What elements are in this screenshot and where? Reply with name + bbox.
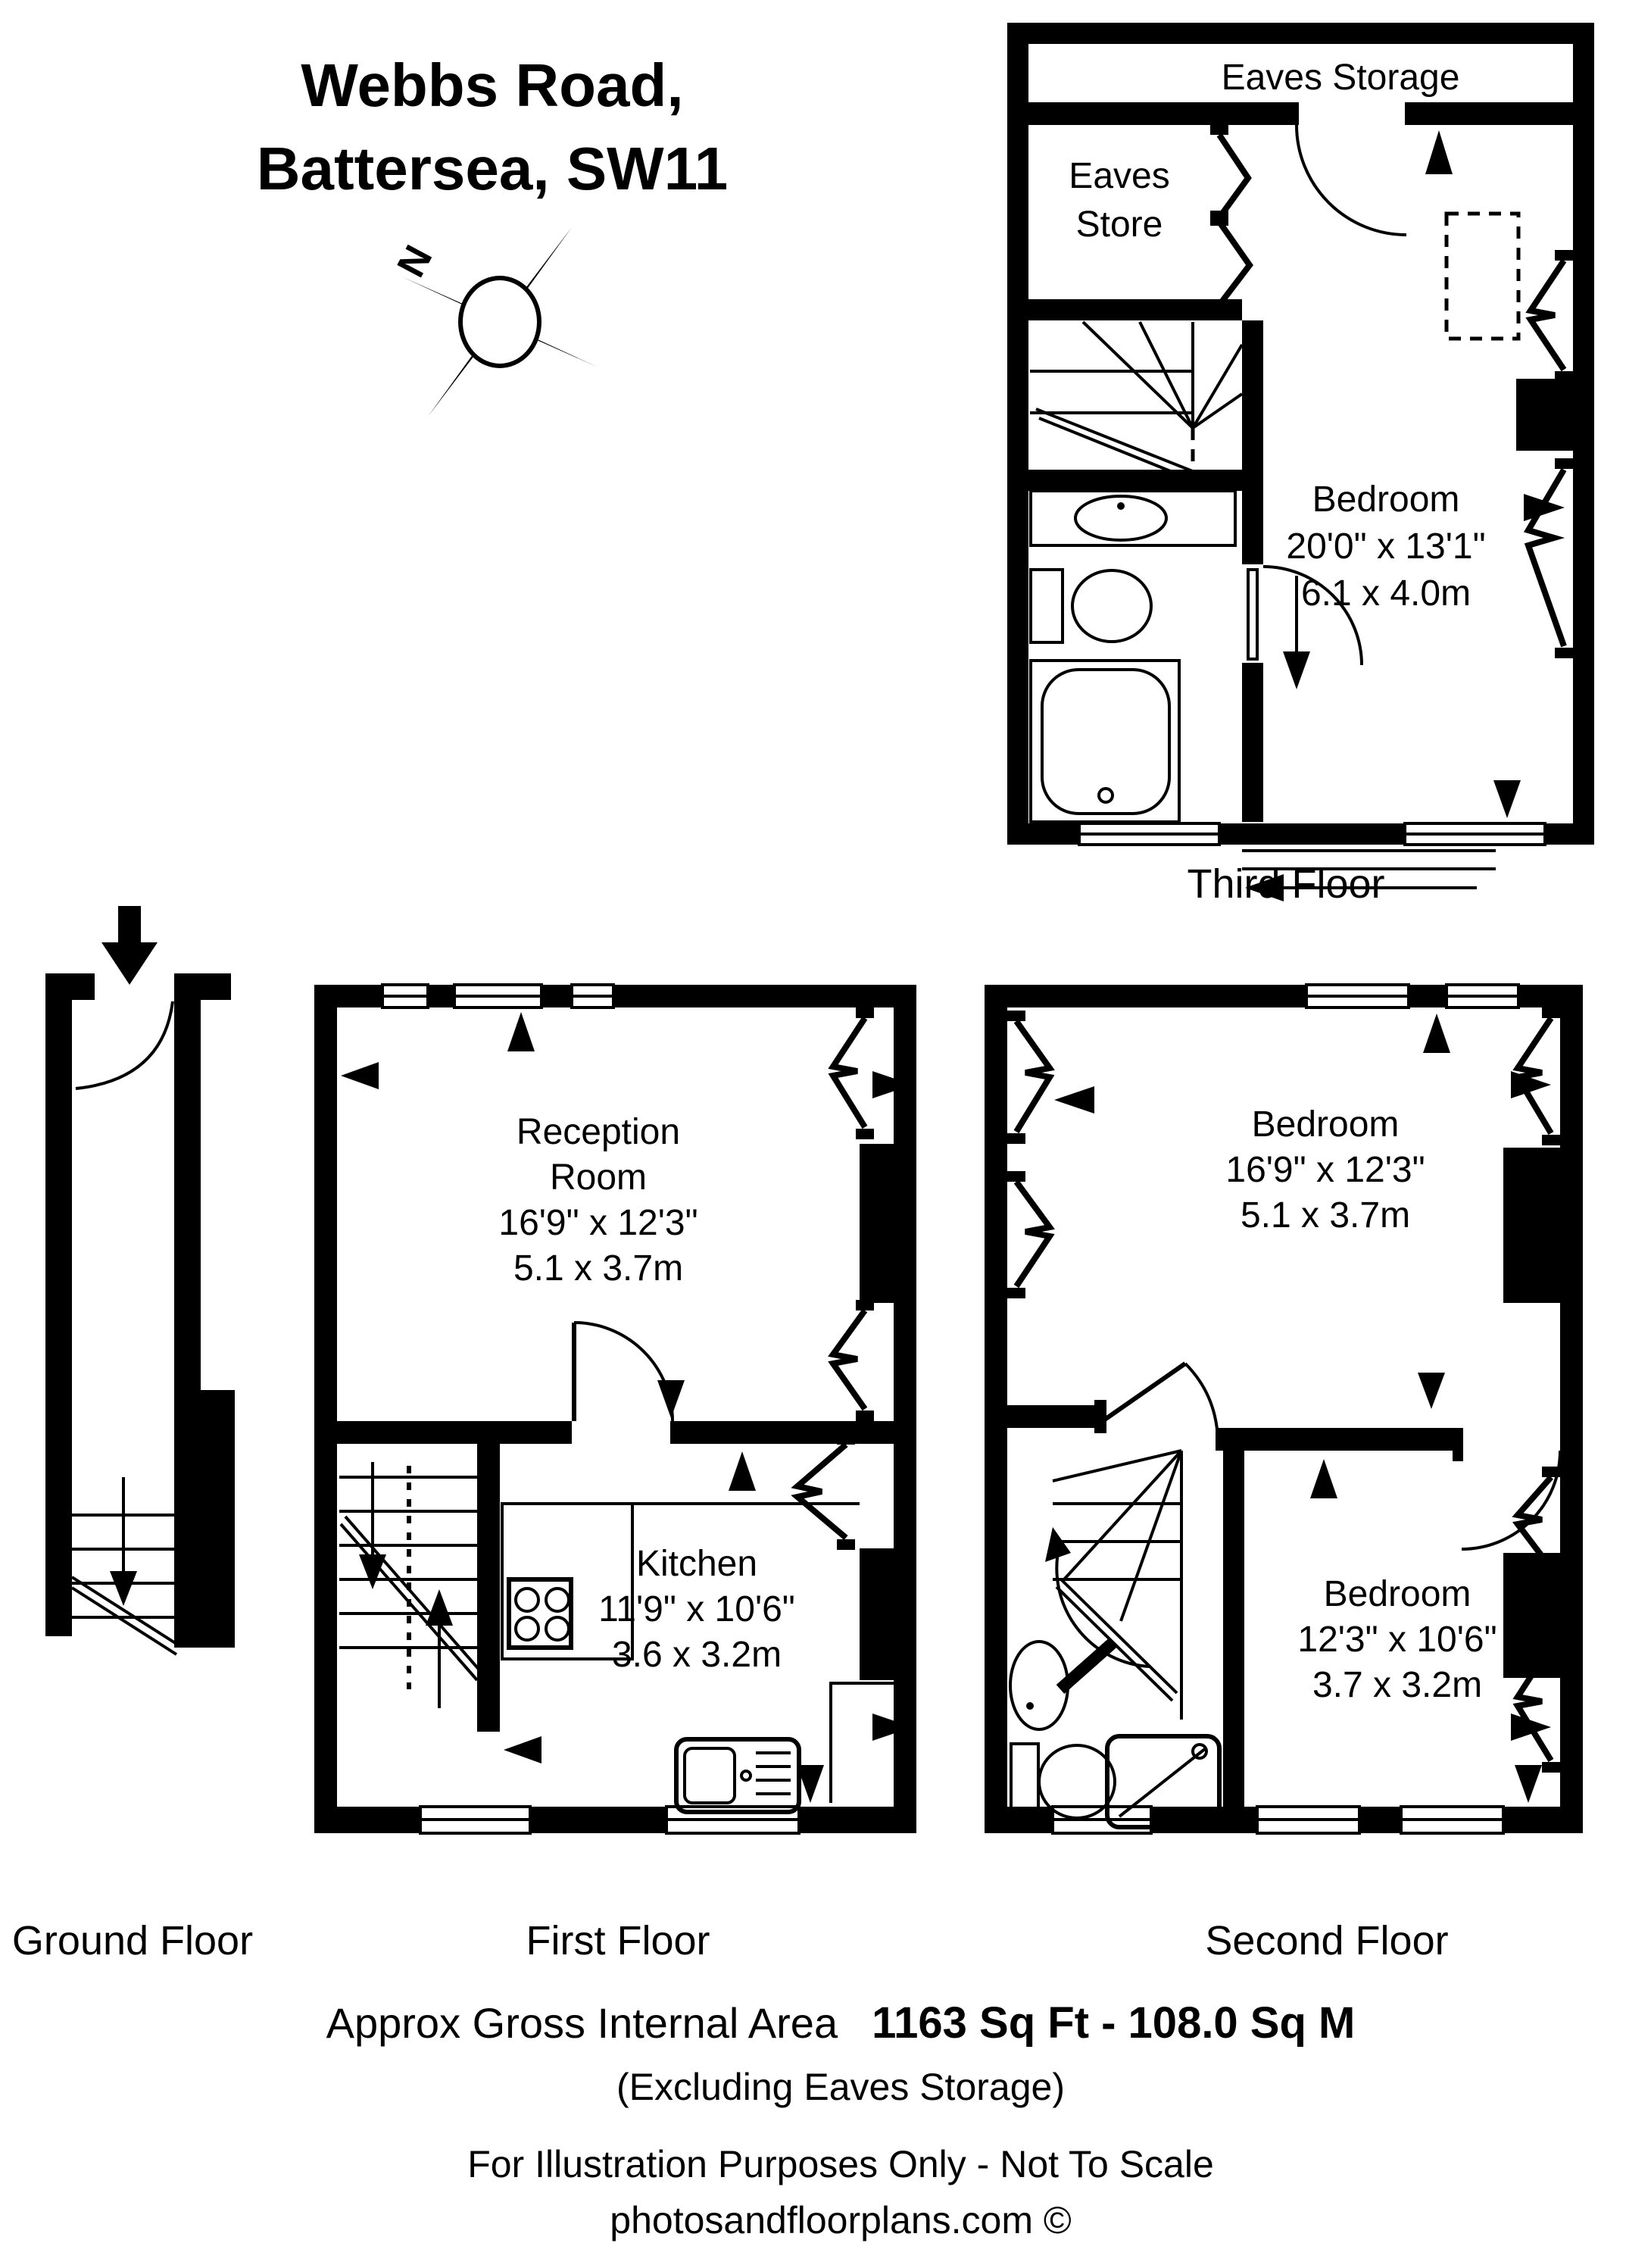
- third-floor-plan: Eaves Storage Eaves Store Bedroom 20'0" …: [1007, 23, 1594, 907]
- window-zigzag: [1007, 1011, 1094, 1298]
- room-label-bedroom: Bedroom: [1252, 1104, 1400, 1145]
- room-dims-metric: 5.1 x 3.7m: [513, 1248, 683, 1289]
- footer: Approx Gross Internal Area1163 Sq Ft - 1…: [326, 1998, 1356, 2241]
- sloped-wall-zigzag: [1210, 120, 1250, 317]
- room-dims-imperial: 20'0" x 13'1": [1286, 526, 1485, 567]
- down-arrow: [657, 1380, 685, 1418]
- toilet-icon: [1031, 570, 1151, 642]
- bath-icon: [1031, 661, 1179, 822]
- door-arc: [76, 1001, 173, 1089]
- room-label-eaves-store-1: Eaves: [1069, 156, 1169, 196]
- window-zigzag: [1516, 250, 1573, 658]
- room-label-bedroom: Bedroom: [1324, 1574, 1472, 1614]
- up-arrow: [729, 1451, 756, 1491]
- bathroom-fixtures: [1031, 491, 1235, 822]
- roof-window-dashed: [1447, 214, 1518, 339]
- compass-icon: N: [389, 227, 598, 417]
- up-arrow: [507, 1012, 535, 1051]
- door-arc: [1462, 1451, 1560, 1549]
- window: [382, 985, 613, 1007]
- up-arrow: [1423, 1014, 1450, 1053]
- room-dims-metric: 3.6 x 3.2m: [612, 1635, 782, 1675]
- floor-label-second: Second Floor: [1205, 1918, 1448, 1963]
- left-arrow: [341, 1062, 379, 1089]
- second-floor-plan: Bedroom 16'9" x 12'3" 5.1 x 3.7m Bedroom…: [985, 985, 1583, 1833]
- area-exclusion-note: (Excluding Eaves Storage): [616, 2066, 1065, 2108]
- room-dims-metric: 5.1 x 3.7m: [1241, 1195, 1410, 1236]
- title-line-2: Battersea, SW11: [257, 135, 729, 202]
- entry-arrow: [101, 906, 158, 985]
- stairs: [72, 1477, 176, 1654]
- property-title: Webbs Road, Battersea, SW11: [257, 52, 729, 202]
- left-arrow: [504, 1736, 541, 1763]
- floorplan-canvas: Webbs Road, Battersea, SW11 N: [0, 0, 1626, 2268]
- room-label-eaves-storage: Eaves Storage: [1222, 58, 1460, 98]
- room-dims-imperial: 16'9" x 12'3": [1225, 1150, 1425, 1190]
- floor-label-ground: Ground Floor: [12, 1918, 253, 1963]
- down-arrow: [1515, 1765, 1542, 1803]
- stairs: [1045, 1451, 1181, 1720]
- floor-label-third: Third Floor: [1187, 861, 1384, 907]
- door-leaf: [1248, 570, 1257, 659]
- chimney-breast: [1503, 1148, 1560, 1678]
- door-arc: [574, 1323, 673, 1421]
- room-label-reception-1: Reception: [517, 1112, 680, 1152]
- sink-icon: [676, 1739, 799, 1812]
- room-dims-metric: 6.1 x 4.0m: [1301, 573, 1471, 614]
- title-line-1: Webbs Road,: [301, 52, 683, 119]
- bathroom-fixtures: [1010, 1642, 1219, 1827]
- room-label-eaves-store-2: Store: [1076, 205, 1163, 245]
- room-dims-metric: 3.7 x 3.2m: [1312, 1665, 1482, 1705]
- north-label: N: [389, 239, 442, 284]
- door-arc: [1297, 125, 1406, 235]
- disclaimer: For Illustration Purposes Only - Not To …: [467, 2143, 1214, 2185]
- floor-label-first: First Floor: [526, 1918, 710, 1963]
- credit: photosandfloorplans.com ©: [610, 2199, 1072, 2241]
- room-dims-imperial: 11'9" x 10'6": [598, 1589, 795, 1629]
- up-arrow: [1310, 1459, 1337, 1498]
- down-arrow: [1493, 780, 1521, 818]
- stairs: [339, 1462, 482, 1708]
- door-leaf: [1098, 1364, 1185, 1424]
- ground-floor-plan: [45, 906, 235, 1654]
- gross-internal-area: Approx Gross Internal Area1163 Sq Ft - 1…: [326, 1998, 1356, 2048]
- room-dims-imperial: 12'3" x 10'6": [1297, 1620, 1496, 1660]
- sink-icon: [1031, 491, 1235, 545]
- hob-icon: [509, 1579, 571, 1648]
- first-floor-plan: Reception Room 16'9" x 12'3" 5.1 x 3.7m …: [314, 985, 916, 1833]
- room-label-reception-2: Room: [550, 1157, 647, 1198]
- room-dims-imperial: 16'9" x 12'3": [498, 1203, 698, 1243]
- up-arrow: [1425, 130, 1453, 174]
- room-label-kitchen: Kitchen: [636, 1544, 757, 1584]
- down-arrow: [1418, 1373, 1445, 1409]
- room-label-bedroom: Bedroom: [1312, 480, 1460, 520]
- door-arc: [1185, 1364, 1218, 1438]
- stairs: [1030, 322, 1242, 491]
- floorplan-page: Webbs Road, Battersea, SW11 N: [0, 0, 1626, 2268]
